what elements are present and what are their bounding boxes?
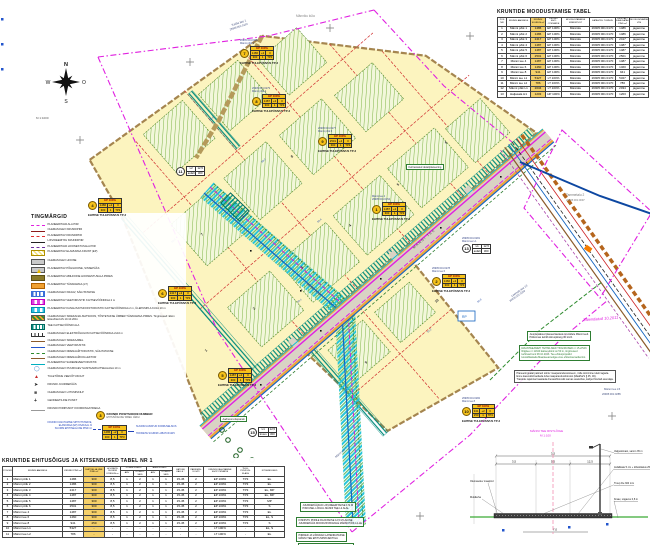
cell: - bbox=[84, 532, 105, 537]
fire-rating-caption: EHITISE TULEPÜSIVUS TP-3 bbox=[432, 289, 470, 293]
dimension-value: 12,5 bbox=[587, 460, 593, 464]
cell: - bbox=[134, 532, 147, 537]
cell: - bbox=[147, 532, 160, 537]
legend-item-label: OLEMASOLEV DRENAAŽITORUSTIK, SÄILITATAKS… bbox=[48, 350, 114, 353]
legend-swatch-icon bbox=[31, 299, 45, 305]
cell: HP 100% bbox=[546, 92, 562, 97]
plot-number-badge: 6 bbox=[158, 289, 167, 298]
legend-swatch-icon bbox=[31, 367, 45, 373]
cell: LT 100% bbox=[204, 532, 237, 537]
road-surface bbox=[494, 514, 612, 519]
col-header: KATUSE KALLE ° bbox=[173, 466, 189, 477]
legend-item: OLEMASOLEV SIDEKANALISATSIOON, TÕSTETAKS… bbox=[31, 315, 185, 321]
legend-item-label: PLANEERITAV KRUNDIPIIR bbox=[48, 234, 82, 237]
elevation: 56,8 bbox=[476, 297, 483, 304]
legend-swatch-icon bbox=[31, 375, 45, 381]
legend-swatch-icon bbox=[31, 250, 45, 256]
sample-note-left: KRUNDI KASUTAMISE SIHTOTSTARVE,ELAMUMAA … bbox=[28, 422, 92, 431]
legend-item: PLANEERITAV KRUNDIPIIR bbox=[31, 234, 185, 238]
col-header: POS NR bbox=[3, 466, 13, 477]
plot-number-badge: 2 bbox=[432, 277, 441, 286]
section-annotations: Valgustimast, samm 35 m Asfaltkate 5 cm … bbox=[470, 450, 650, 501]
note-box: JUURDEPÄÄSUD LIKVIDEERITAKSE 172 M PIKKU… bbox=[300, 502, 356, 512]
note-box: PIIRDED JA VÄRAVAD LAHENDATAKSE MÄNNI TE… bbox=[296, 532, 347, 542]
legend-item-label: PLANEERITAVA ALA PIIR bbox=[48, 223, 79, 226]
table-a-head: POS NR KRUNDI AADRESS KRUNDI SUURUS m² K… bbox=[498, 17, 649, 26]
annotation: Valgustimast, samm 35 m bbox=[614, 450, 643, 453]
cell: 26905:001:0170 bbox=[590, 92, 616, 97]
cell: TP3 bbox=[344, 143, 352, 148]
legend-item-label: KRUNDI JUURDEPÄÄS bbox=[48, 383, 77, 386]
plot-callout-5: 5 EP 100% 1487+2II 3001TP3 EHITISE TULEP… bbox=[218, 368, 256, 387]
col-header: KITSENDUSED bbox=[255, 466, 285, 477]
legend-item-label: PLANEERITAV ABIHOONE HOONESTUSALA PIIRES bbox=[48, 275, 113, 278]
cell: kruus bbox=[258, 432, 268, 437]
legend-swatch-icon bbox=[31, 247, 45, 248]
legend-item: OLEMASOLEV PUURKAEV SANITAARKAITSEALAGA … bbox=[31, 367, 185, 373]
plot-callout-10: 26905:001:0282 Männi tee 8 10 EP 100% 94… bbox=[462, 398, 500, 423]
cell: TP3 bbox=[398, 211, 406, 216]
legend-item-label: PLANEERITAV SADEMEVEETORUSTIK bbox=[48, 361, 97, 364]
dimension-depth: 7,0 bbox=[553, 528, 558, 532]
legend-swatch-icon bbox=[31, 364, 45, 365]
note-line: MÄNNI TEE EHITUSPROJEKTIGA bbox=[299, 537, 345, 540]
road-number-badge: 11 bbox=[176, 167, 185, 176]
legend-swatch-icon bbox=[31, 267, 45, 273]
note-line: kooskõlastada Maanteeametiga enne ehitus… bbox=[522, 356, 588, 359]
legend-item: TULETÕRJE VEEVÕTUKOHT bbox=[31, 375, 185, 381]
cell: - bbox=[160, 532, 173, 537]
plot-callout-4: 4 EP 100% 1486+2II 3001TP3 EHITISE TULEP… bbox=[88, 198, 126, 217]
col-header: KRUNDI SUURUS m² bbox=[531, 17, 546, 26]
fire-rating-caption: EHITISE TULEPÜSIVUS TP-3 bbox=[372, 217, 410, 221]
col-header: POS NR bbox=[498, 17, 507, 26]
compass-s: S bbox=[64, 99, 68, 105]
col-header: KRUNDI AADRESS bbox=[13, 466, 63, 477]
cell: 300 bbox=[98, 208, 107, 213]
legend-item: PLANEERITAV ELAMUMAA KRUNT (EP) bbox=[31, 250, 185, 256]
legend-swatch-icon bbox=[31, 358, 45, 359]
annotation: Olemasolev maapind bbox=[470, 480, 494, 483]
legend-swatch-icon bbox=[31, 231, 45, 232]
legend-item-label: OLEMASOLEV PUURKAEV SANITAARKAITSEALAGA … bbox=[48, 367, 121, 370]
plot-callout-6: 6 EP 100% 2417+2II 3001TP3 EHITISE TULEP… bbox=[158, 286, 196, 305]
legend-item-label: TULETÕRJE VEEVÕTUKOHT bbox=[48, 375, 85, 378]
note-line: JUURDEPÄÄS MOODUSTATAVALE MÄNNI PÕIK L2-… bbox=[299, 522, 362, 525]
plot-callout-7: 26905:001:0281 Männi põik 2 7 EP 100% 14… bbox=[240, 40, 278, 65]
legend-item: PLANEERITAV ABIHOONE HOONESTUSALA PIIRES bbox=[31, 275, 185, 281]
legend-item-label: OLEMASOLEV KRUNDIPIIR bbox=[48, 228, 83, 231]
section-scale: M 1:100 bbox=[540, 434, 551, 438]
street-cross-section: MÄNNI TEE RISTLÕIGE M 1:100 3,5 5,5 12,5… bbox=[468, 424, 650, 545]
legend-item-label: OLEMASOLEV LIITUMISKILP bbox=[48, 391, 84, 394]
sample-cell: TP3 bbox=[118, 435, 126, 440]
legend-item: PLANEERITAV KANALISATSIOONITORUSTIK KAIT… bbox=[31, 307, 185, 313]
legend-swatch-icon bbox=[31, 225, 45, 226]
legend-swatch-icon bbox=[31, 283, 45, 289]
note-box: KINNISTU PIIRILE RAJATAKSE 12,5 M LAIUNE… bbox=[296, 517, 364, 527]
map-label: 26905:001:0285 bbox=[602, 392, 621, 396]
plot-number-badge: 4 bbox=[88, 201, 97, 210]
legend-swatch-icon bbox=[31, 347, 45, 348]
col-header: HOONETE SUURIM KÕRGUS m bbox=[105, 466, 121, 477]
plot-formation-table-panel: KRUNTIDE MOODUSTAMISE TABEL POS NR KRUND… bbox=[497, 9, 649, 98]
cell: 300 bbox=[328, 143, 337, 148]
table-b-head: POS NR KRUNDI AADRESS KRUNDI PIND m² EHI… bbox=[3, 466, 285, 477]
cell: TP3 bbox=[266, 55, 274, 60]
legend-item: PLANEERITAV SADEMEVEETORUSTIK bbox=[31, 361, 185, 365]
cell: - bbox=[105, 532, 121, 537]
plot-callout-8: 26905:001:0279 Männi põik 4 8 EP 100% 14… bbox=[252, 88, 290, 113]
legend-item-label: PLANEERITAV ELAMUMAA KRUNT (EP) bbox=[48, 250, 98, 253]
cell: - bbox=[189, 532, 204, 537]
fire-rating-caption: EHITISE TULEPÜSIVUS TP-3 bbox=[462, 419, 500, 423]
legend-panel: TINGMÄRGID PLANEERITAVA ALA PIIR OLEMASO… bbox=[30, 213, 186, 414]
legend-item-label: OLEMASOLEV ELEKTRIÕHULIIN KAITSEVÖÖNDIGA… bbox=[48, 332, 123, 335]
cell: - bbox=[173, 532, 189, 537]
fire-rating-caption: EHITISE TULEPÜSIVUS TP-3 bbox=[88, 213, 126, 217]
dimension-value: 3,5 bbox=[512, 460, 517, 464]
legend-item: TEE KAITSEVÖÖNDI ALA bbox=[31, 324, 185, 330]
cell: 300 bbox=[168, 296, 177, 301]
legend-swatch-icon bbox=[31, 383, 45, 389]
table-a-body: 1 Männi põik 1 1486 EP 100% Männiku 2690… bbox=[498, 26, 649, 97]
legend-item-label: TEE KAITSEVÖÖNDI ALA bbox=[48, 324, 80, 327]
plot-number-badge: 10 bbox=[462, 407, 471, 416]
section-title: MÄNNI TEE RISTLÕIGE bbox=[530, 428, 563, 433]
col-header: KRUNDI AADRESS bbox=[507, 17, 531, 26]
annotation: Asfaltkate 5 cm + killustikalus 25 cm bbox=[614, 466, 650, 469]
col-header: KORRU- SEID bbox=[134, 470, 147, 477]
existing-plan-box: Kehtestatud detailplaneering bbox=[406, 164, 444, 170]
position-number-sample: 3 KRUNDI POSITSIOONI NUMBER EHITUSÕIGUSE… bbox=[96, 411, 153, 420]
scale-note: M 1:1000 bbox=[36, 116, 49, 120]
pos-num-label: KRUNDI POSITSIOONI NUMBER bbox=[107, 412, 153, 416]
cell: TP3 bbox=[184, 296, 192, 301]
legend-swatch-icon bbox=[31, 324, 45, 330]
road-number-badge: 15 bbox=[248, 428, 257, 437]
col-header: KRUNDI KASUTAMISE SIHTOTSTARVE bbox=[204, 466, 237, 477]
cell: TP3 bbox=[486, 413, 494, 418]
cell: jagamine bbox=[630, 92, 649, 97]
annotation: Kraav, sügavus 0,8 m bbox=[614, 498, 638, 501]
compass-n: N bbox=[64, 62, 68, 68]
cell: 786 bbox=[63, 532, 84, 537]
legend-swatch-icon bbox=[31, 259, 45, 265]
plot-callout-1: Männi tee 4 26905:001:0154 1 EP 100% 148… bbox=[372, 196, 410, 221]
plot-number-badge: 1 bbox=[372, 205, 381, 214]
road-callout-11: 11 L212,5 asfalt300 bbox=[176, 166, 205, 176]
table-row: 11 Männi tee L2 786 - - - - - - - - LT 1… bbox=[3, 532, 285, 537]
plot-number-badge: 8 bbox=[252, 97, 261, 106]
cell: 300 bbox=[382, 211, 391, 216]
legend-item-label: PLANEERITAV PÕHIHOONE, SISSEPÄÄS bbox=[48, 267, 100, 270]
legend-list: PLANEERITAVA ALA PIIR OLEMASOLEV KRUNDIP… bbox=[31, 223, 185, 411]
cell: 250 bbox=[472, 413, 480, 418]
cell: - bbox=[237, 532, 255, 537]
table-row: 13 Haljasala H1 1203 HP 100% Männiku 269… bbox=[498, 92, 649, 97]
cell: asfalt bbox=[186, 171, 196, 176]
cell: 300 bbox=[262, 103, 271, 108]
pos-num-sublabel: EHITUSÕIGUSE TABELI JÄRGI bbox=[107, 417, 140, 419]
plot-number-badge: 9 bbox=[318, 137, 327, 146]
legend-item-label: OLEMASOLEV SIDEKANALISATSIOON, TÕSTETAKS… bbox=[48, 315, 186, 321]
cell: 300 bbox=[196, 171, 204, 176]
map-label: Männi tee L5 bbox=[604, 387, 621, 391]
legend-swatch-icon bbox=[31, 341, 45, 342]
north-arrow: N W O S bbox=[46, 62, 86, 105]
cell: 13 bbox=[498, 92, 507, 97]
col-header: LIIDETAV / ERALDATAV PIND m² bbox=[616, 17, 630, 26]
legend-item: PLANEERITAVA HOONESTUSALA PIIR bbox=[31, 245, 185, 249]
cell: 300 bbox=[442, 283, 451, 288]
cell: Männiku bbox=[562, 92, 590, 97]
legend-item-label: OLEMASOLEV DRENAAŽIKOLLEKTOR bbox=[48, 356, 97, 359]
annotation: Truup De 300 mm bbox=[614, 482, 634, 485]
cell: 1203 bbox=[531, 92, 546, 97]
note-line: PIKKUSEL LÕIGUL MÄNNI TEE L2 ALAL bbox=[303, 507, 354, 510]
legend-swatch-icon bbox=[31, 391, 45, 397]
compass-o: O bbox=[82, 80, 86, 86]
legend-swatch-icon bbox=[31, 236, 45, 237]
legend-item: OLEMASOLEV SIDEKAABEL bbox=[31, 339, 185, 343]
legend-item: OLEMASOLEV HOONE bbox=[31, 259, 185, 265]
access-note-box: Juurdepääsud planeeritavatele kruntidele… bbox=[527, 331, 591, 341]
fire-rating-caption: EHITISE TULEPÜSIVUS TP-3 bbox=[240, 61, 278, 65]
col-header: MOODUSTAMISE VIIS bbox=[630, 17, 649, 26]
cell: 300 bbox=[268, 432, 276, 437]
cell: TP3 bbox=[244, 378, 252, 383]
legend-swatch-icon bbox=[31, 333, 45, 337]
note-line: Trasside rajamisel taastada drenaažitoru… bbox=[517, 378, 614, 381]
light-pole bbox=[589, 444, 602, 515]
edge-markers bbox=[1, 18, 4, 71]
legend-item-label: OLEMASOLEV VEETORUSTIK bbox=[48, 344, 86, 347]
legend-item: OLEMASOLEV DRENAAŽIKOLLEKTOR bbox=[31, 356, 185, 360]
detail-plan-sheet: N W O S Kalda tee 1 26905:001:0153 Männi… bbox=[0, 0, 650, 545]
cell: 11 bbox=[3, 532, 13, 537]
building-rights-table: POS NR KRUNDI AADRESS KRUNDI PIND m² EHI… bbox=[2, 466, 285, 538]
cell: Haljasala H1 bbox=[507, 92, 531, 97]
legend-swatch-icon bbox=[31, 275, 45, 281]
table-b-body: 1 Männi põik 1 1486 300 8,5 1 2 1 1 15-4… bbox=[3, 477, 285, 537]
plot-number-badge: 7 bbox=[240, 49, 249, 58]
sample-note-right1: SUURIM LUBATUD KORRUSELISUS bbox=[136, 426, 176, 429]
drainage-note-box: Planeeringualal paikneb toimiv maaparand… bbox=[514, 370, 616, 383]
sample-note-right2: HOONETE SUURIM LUBATUD ARV bbox=[136, 433, 175, 436]
legend-swatch-icon bbox=[31, 242, 45, 243]
cell: 300 bbox=[482, 249, 490, 254]
fire-rating-caption: EHITISE TULEPÜSIVUS TP-3 bbox=[158, 301, 196, 305]
road-callout-13: 26905:001:0281 Männi tee L1 13 L112,5 as… bbox=[462, 238, 491, 254]
map-label: Tammetalu 2 bbox=[566, 193, 584, 197]
legend-swatch-icon bbox=[31, 291, 45, 297]
col-header: TULE- PÜSIVUS- KLASS bbox=[237, 466, 255, 477]
sample-callout-table: EP 100% 1486+2II 3001TP3 bbox=[102, 425, 127, 440]
cell: TP3 bbox=[278, 103, 286, 108]
legend-swatch-icon bbox=[31, 307, 45, 313]
cell: Männi tee L2 bbox=[13, 532, 63, 537]
legend-item-label: OLEMASOLEV SIDEKAABEL bbox=[48, 339, 84, 342]
col-header: KORRU- SEID bbox=[160, 470, 173, 477]
legend-item: PLANEERITAV PÕHIHOONE, SISSEPÄÄS bbox=[31, 267, 185, 273]
col-header: KATASTRI- TUNNUS bbox=[590, 17, 616, 26]
cell: EL bbox=[255, 532, 285, 537]
pump-station-label: RP bbox=[462, 315, 467, 319]
legend-swatch-icon bbox=[31, 353, 45, 354]
plot-callout-2: 26905:001:0278 Männi tee 6 2 EP 100% 146… bbox=[432, 268, 470, 293]
legend-item: OLEMASOLEV KRUNDIPIIR bbox=[31, 228, 185, 232]
sample-leader bbox=[128, 431, 134, 432]
road-callout-15: 15 L112,5 kruus300 bbox=[248, 427, 277, 437]
plot-number-badge: 5 bbox=[218, 371, 227, 380]
legend-item: OLEMASOLEV ELEKTRIÕHULIIN KAITSEVÖÖNDIGA… bbox=[31, 332, 185, 337]
note-line: Piirkonnas kehtib kiiruspiirang 30 km/h. bbox=[530, 336, 589, 339]
legend-item: PLANEERITAVA ALA PIIR bbox=[31, 223, 185, 227]
fire-rating-caption: EHITISE TULEPÜSIVUS TP-3 bbox=[252, 109, 290, 113]
legend-item-label: PLANEERITAVA HOONESTUSALA PIIR bbox=[48, 245, 96, 248]
sample-cell: 300 bbox=[103, 435, 112, 440]
plot-callout-9: 26905:001:0277 Männi põik 6 9 EP 100% 25… bbox=[318, 128, 356, 153]
cell: asfalt bbox=[472, 249, 482, 254]
legend-item: OLEMASOLEV LIITUMISKILP bbox=[31, 391, 185, 397]
road-authority-note-box: MAANTEEAMETI TEHNILISED TINGIMUSED nr 15… bbox=[519, 345, 590, 361]
legend-item-label: LIKVIDEERITAV KRUNDIPIIR bbox=[48, 239, 84, 242]
col-header: PARKIMIS- KOHTI bbox=[189, 466, 204, 477]
sample-callout-box: EP 100% 1486+2II 3001TP3 bbox=[102, 425, 127, 440]
legend-item: KRUNDI JUURDEPÄÄS bbox=[31, 383, 185, 389]
legend-item-label: PLANEERITAV VEETORUSTIK KAITSEVÖÖNDIGA 2… bbox=[48, 299, 116, 302]
cell: TP3 bbox=[114, 208, 122, 213]
table-b-title: KRUNTIDE EHITUSÕIGUS JA KITSENDUSED TABE… bbox=[2, 458, 286, 464]
cell: 300 bbox=[250, 55, 259, 60]
building-rights-table-panel: KRUNTIDE EHITUSÕIGUS JA KITSENDUSED TABE… bbox=[2, 458, 286, 538]
table-a-title: KRUNTIDE MOODUSTAMISE TABEL bbox=[497, 9, 649, 15]
legend-swatch-icon bbox=[31, 315, 45, 321]
col-header: ARV bbox=[147, 470, 160, 477]
sample-leader bbox=[93, 429, 101, 430]
compass-w: W bbox=[46, 80, 51, 86]
cell: TP3 bbox=[458, 283, 466, 288]
legend-item-label: OLEMASOLEV HOONE bbox=[48, 259, 77, 262]
map-label: 26905:001:0097 bbox=[566, 198, 585, 202]
col-header: EHITISE- ALUNE PIND m² bbox=[84, 466, 105, 477]
legend-item-label: PLANEERITAV TÄNAVAMAA (LT) bbox=[48, 283, 88, 286]
legend-item: OLEMASOLEV VEETORUSTIK bbox=[31, 344, 185, 348]
col-header: ARV bbox=[121, 470, 134, 477]
col-header: KRUNDI PIND m² bbox=[63, 466, 84, 477]
legend-item-label: OLEMASOLEV KRAAV, SÄILITATAKSE bbox=[48, 291, 96, 294]
legend-item: OLEMASOLEV DRENAAŽITORUSTIK, SÄILITATAKS… bbox=[31, 350, 185, 354]
cell: 1203 bbox=[616, 92, 630, 97]
fire-rating-caption: EHITISE TULEPÜSIVUS TP-3 bbox=[318, 149, 356, 153]
road-number-badge: 13 bbox=[462, 244, 471, 253]
fire-rating-caption: EHITISE TULEPÜSIVUS TP-3 bbox=[218, 383, 256, 387]
map-label: Männiku küla bbox=[296, 14, 315, 18]
col-header: MOODUSTATAKSE KINNISTUST bbox=[562, 17, 590, 26]
legend-item: LIKVIDEERITAV KRUNDIPIIR bbox=[31, 239, 185, 243]
position-number-badge: 3 bbox=[96, 411, 105, 420]
annotation: Muldkeha bbox=[470, 496, 481, 499]
cell: 300 bbox=[228, 378, 237, 383]
cell: - bbox=[121, 532, 134, 537]
col-header: KRUNDI SIHT- OTSTARVE bbox=[546, 17, 562, 26]
address-proposal-box: Aadressi ettepanek bbox=[220, 416, 247, 422]
legend-item-label: PLANEERITAV KANALISATSIOONITORUSTIK KAIT… bbox=[48, 307, 166, 310]
plot-formation-table: POS NR KRUNDI AADRESS KRUNDI SUURUS m² K… bbox=[497, 17, 649, 98]
